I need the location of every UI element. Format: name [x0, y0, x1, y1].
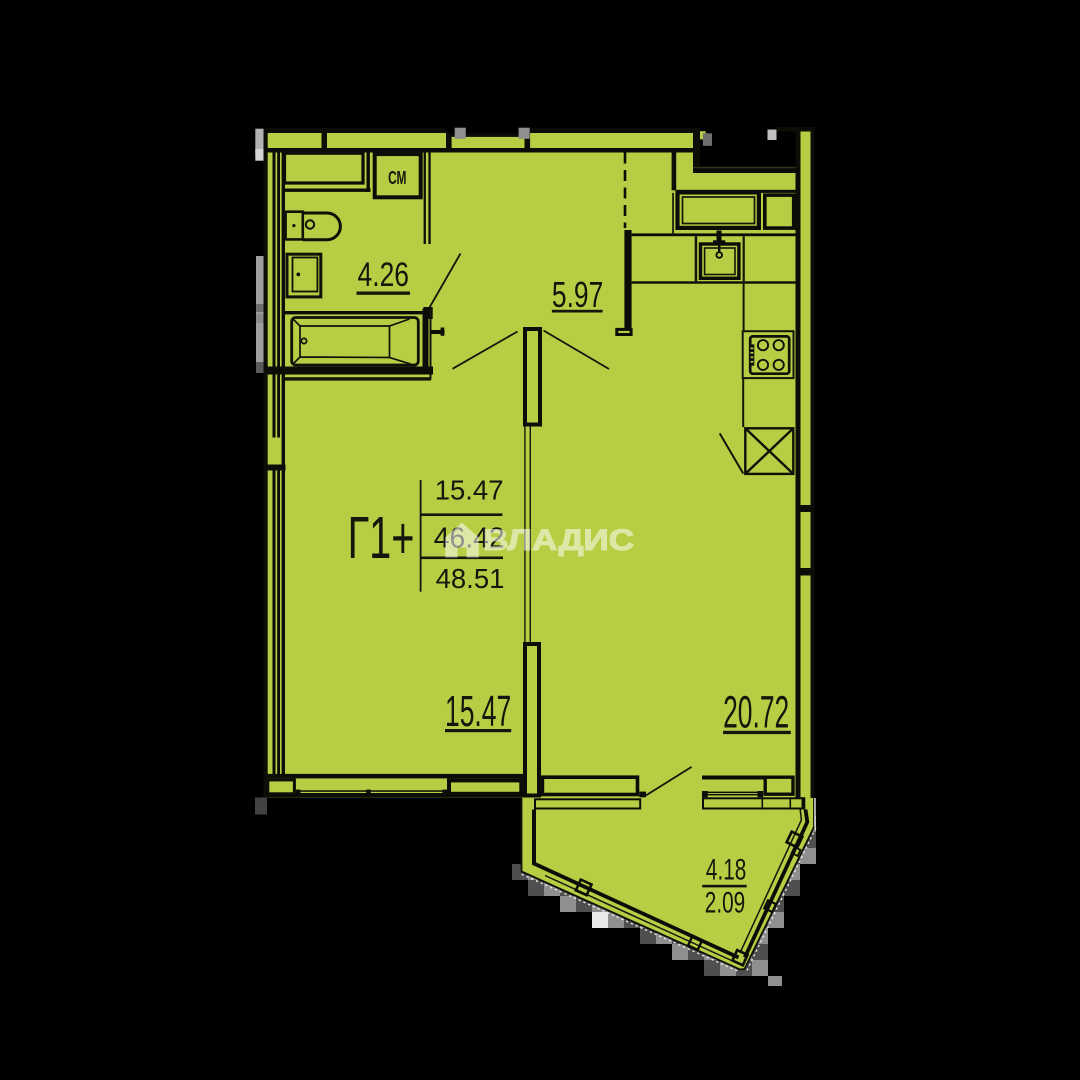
svg-text:СМ: СМ: [388, 167, 406, 188]
svg-text:15.47: 15.47: [435, 474, 504, 505]
svg-text:4.26: 4.26: [358, 256, 410, 294]
svg-text:Г1+: Г1+: [348, 505, 415, 571]
svg-text:4.18: 4.18: [706, 853, 746, 886]
svg-text:48.51: 48.51: [436, 563, 505, 594]
svg-text:5.97: 5.97: [552, 274, 603, 315]
svg-text:2.09: 2.09: [705, 887, 745, 920]
svg-text:20.72: 20.72: [723, 687, 789, 738]
svg-text:15.47: 15.47: [445, 687, 511, 736]
svg-text:ВЛАДИС: ВЛАДИС: [483, 525, 634, 557]
